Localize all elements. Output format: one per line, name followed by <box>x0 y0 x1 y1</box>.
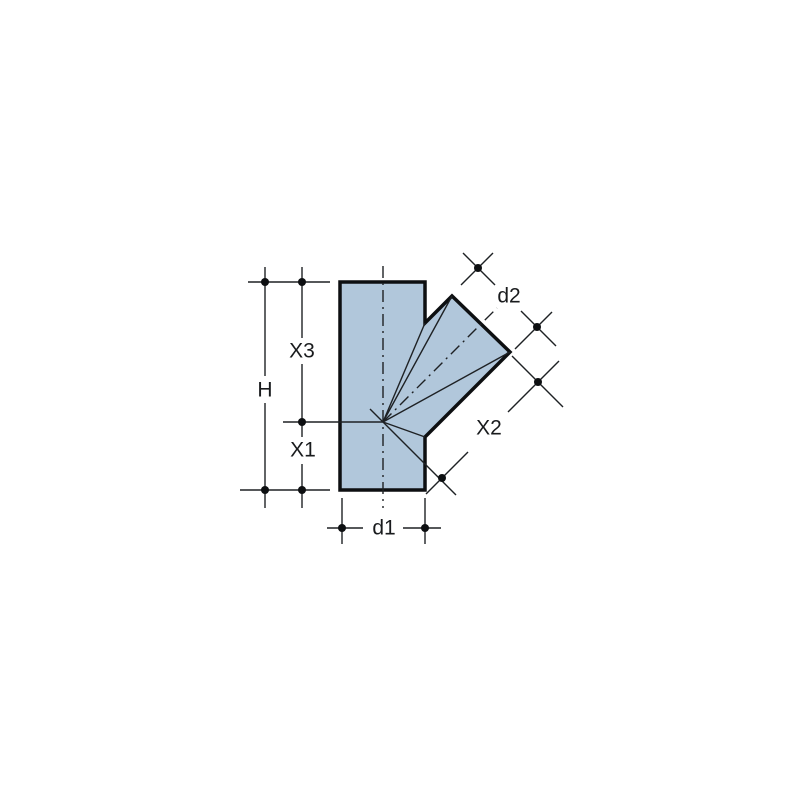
dim-dot <box>534 378 542 386</box>
fitting-body <box>340 282 510 490</box>
label-d1: d1 <box>372 517 395 540</box>
dim-dot <box>421 524 429 532</box>
dim-dot <box>338 524 346 532</box>
d2-extension-tick-lower <box>515 312 552 349</box>
label-h: H <box>257 379 272 402</box>
label-x1: X1 <box>290 439 316 462</box>
label-d2: d2 <box>497 285 520 308</box>
left-dimension-group <box>240 267 330 508</box>
x2-dimension-line-upper <box>508 361 559 412</box>
fitting-body-group <box>340 282 510 490</box>
label-x3: X3 <box>289 340 315 363</box>
dim-dot <box>298 486 306 494</box>
dim-dot <box>474 264 482 272</box>
pipe-fitting-diagram: H X3 X1 X2 d1 d2 <box>0 0 800 800</box>
dim-dot <box>298 418 306 426</box>
x2-dimension-line-lower <box>426 452 468 494</box>
dim-dot <box>261 278 269 286</box>
dim-dot <box>298 278 306 286</box>
dim-dot <box>438 474 446 482</box>
dim-dot <box>533 323 541 331</box>
pipe-fitting-diagram-page: H X3 X1 X2 d1 d2 <box>0 0 800 800</box>
dim-dot <box>261 486 269 494</box>
label-x2: X2 <box>476 417 502 440</box>
